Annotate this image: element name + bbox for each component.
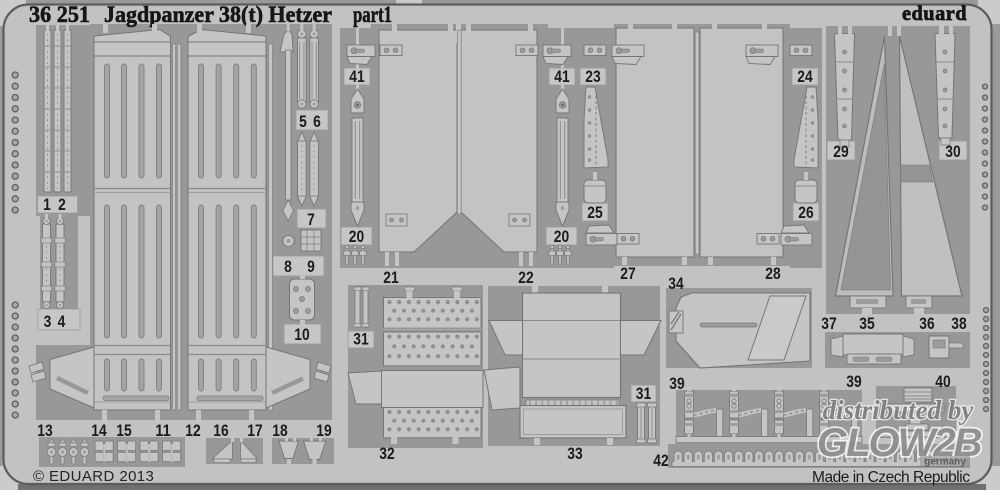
svg-text:41: 41: [349, 67, 364, 86]
svg-text:12: 12: [185, 421, 200, 440]
svg-text:germany: germany: [924, 457, 966, 468]
svg-text:29: 29: [833, 142, 848, 161]
svg-text:39: 39: [846, 372, 861, 391]
svg-text:10: 10: [294, 325, 309, 344]
svg-text:part1: part1: [353, 2, 392, 27]
svg-text:30: 30: [945, 142, 960, 161]
svg-text:33: 33: [567, 444, 582, 463]
svg-text:18: 18: [272, 421, 287, 440]
svg-text:15: 15: [116, 421, 131, 440]
svg-text:27: 27: [620, 264, 635, 283]
svg-text:34: 34: [668, 274, 684, 293]
svg-text:31: 31: [353, 330, 368, 349]
svg-text:Made in Czech Republic: Made in Czech Republic: [812, 469, 970, 486]
svg-text:28: 28: [765, 264, 780, 283]
svg-text:4: 4: [58, 312, 66, 331]
svg-text:42: 42: [653, 451, 668, 470]
svg-text:26: 26: [798, 203, 813, 222]
svg-text:3: 3: [44, 312, 52, 331]
svg-text:19: 19: [316, 421, 331, 440]
svg-text:25: 25: [587, 203, 602, 222]
svg-text:36: 36: [919, 314, 934, 333]
svg-text:36 251: 36 251: [29, 2, 90, 27]
svg-text:7: 7: [307, 210, 315, 229]
svg-text:32: 32: [379, 444, 394, 463]
svg-text:22: 22: [518, 268, 533, 287]
svg-text:23: 23: [585, 67, 600, 86]
svg-text:38: 38: [951, 314, 966, 333]
svg-text:5: 5: [299, 112, 307, 131]
svg-text:2: 2: [58, 195, 66, 214]
svg-text:41: 41: [554, 67, 569, 86]
svg-text:20: 20: [554, 227, 569, 246]
svg-text:1: 1: [43, 195, 51, 214]
svg-text:20: 20: [349, 227, 364, 246]
svg-text:13: 13: [37, 421, 52, 440]
svg-text:40: 40: [935, 372, 950, 391]
svg-text:37: 37: [821, 314, 836, 333]
svg-text:31: 31: [636, 384, 651, 403]
svg-text:16: 16: [213, 421, 228, 440]
svg-text:35: 35: [859, 314, 874, 333]
svg-text:24: 24: [797, 67, 813, 86]
svg-text:Jagdpanzer 38(t) Hetzer: Jagdpanzer 38(t) Hetzer: [104, 2, 332, 27]
svg-text:21: 21: [383, 268, 398, 287]
svg-text:11: 11: [155, 421, 170, 440]
svg-text:17: 17: [247, 421, 262, 440]
svg-text:8: 8: [284, 257, 292, 276]
svg-text:6: 6: [313, 112, 321, 131]
svg-text:© EDUARD 2013: © EDUARD 2013: [33, 468, 154, 485]
svg-text:eduard: eduard: [902, 1, 967, 25]
svg-text:39: 39: [669, 374, 684, 393]
svg-text:9: 9: [307, 257, 315, 276]
svg-text:14: 14: [91, 421, 107, 440]
